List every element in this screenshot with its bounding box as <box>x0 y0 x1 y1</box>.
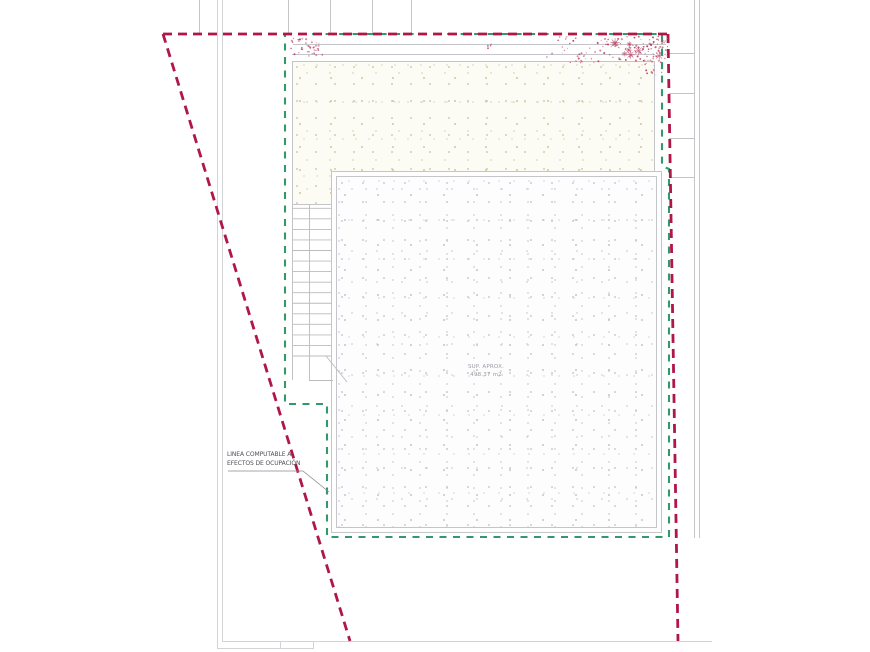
stair-treads <box>293 208 331 356</box>
occupancy-label-line1: LINEA COMPUTABLE A <box>227 451 313 460</box>
area-label-line2: 498.37 m2 <box>450 371 522 379</box>
shrub-mark <box>626 51 635 60</box>
plan-linework <box>0 0 870 652</box>
occupancy-label-line2: EFECTOS DE OCUPACIÓN <box>227 460 313 469</box>
area-label: SUP. APROX. 498.37 m2 <box>450 363 522 379</box>
shrub-mark <box>622 51 628 56</box>
neighbor-structure-lines <box>200 0 713 649</box>
shrub-mark <box>612 41 618 47</box>
stairs <box>293 205 348 382</box>
vegetation-marks <box>290 36 668 76</box>
boundary-red-dashed <box>163 34 678 641</box>
computable-green-dashed-boundary <box>285 34 669 537</box>
occupancy-label: LINEA COMPUTABLE A EFECTOS DE OCUPACIÓN <box>227 451 313 468</box>
area-label-line1: SUP. APROX. <box>450 363 522 371</box>
site-plan-canvas: LINEA COMPUTABLE A EFECTOS DE OCUPACIÓN … <box>0 0 870 652</box>
shrub-mark <box>626 47 633 54</box>
occupancy-leader-line <box>228 471 329 492</box>
shrub-mark <box>627 41 632 46</box>
shrub-mark <box>634 46 643 55</box>
